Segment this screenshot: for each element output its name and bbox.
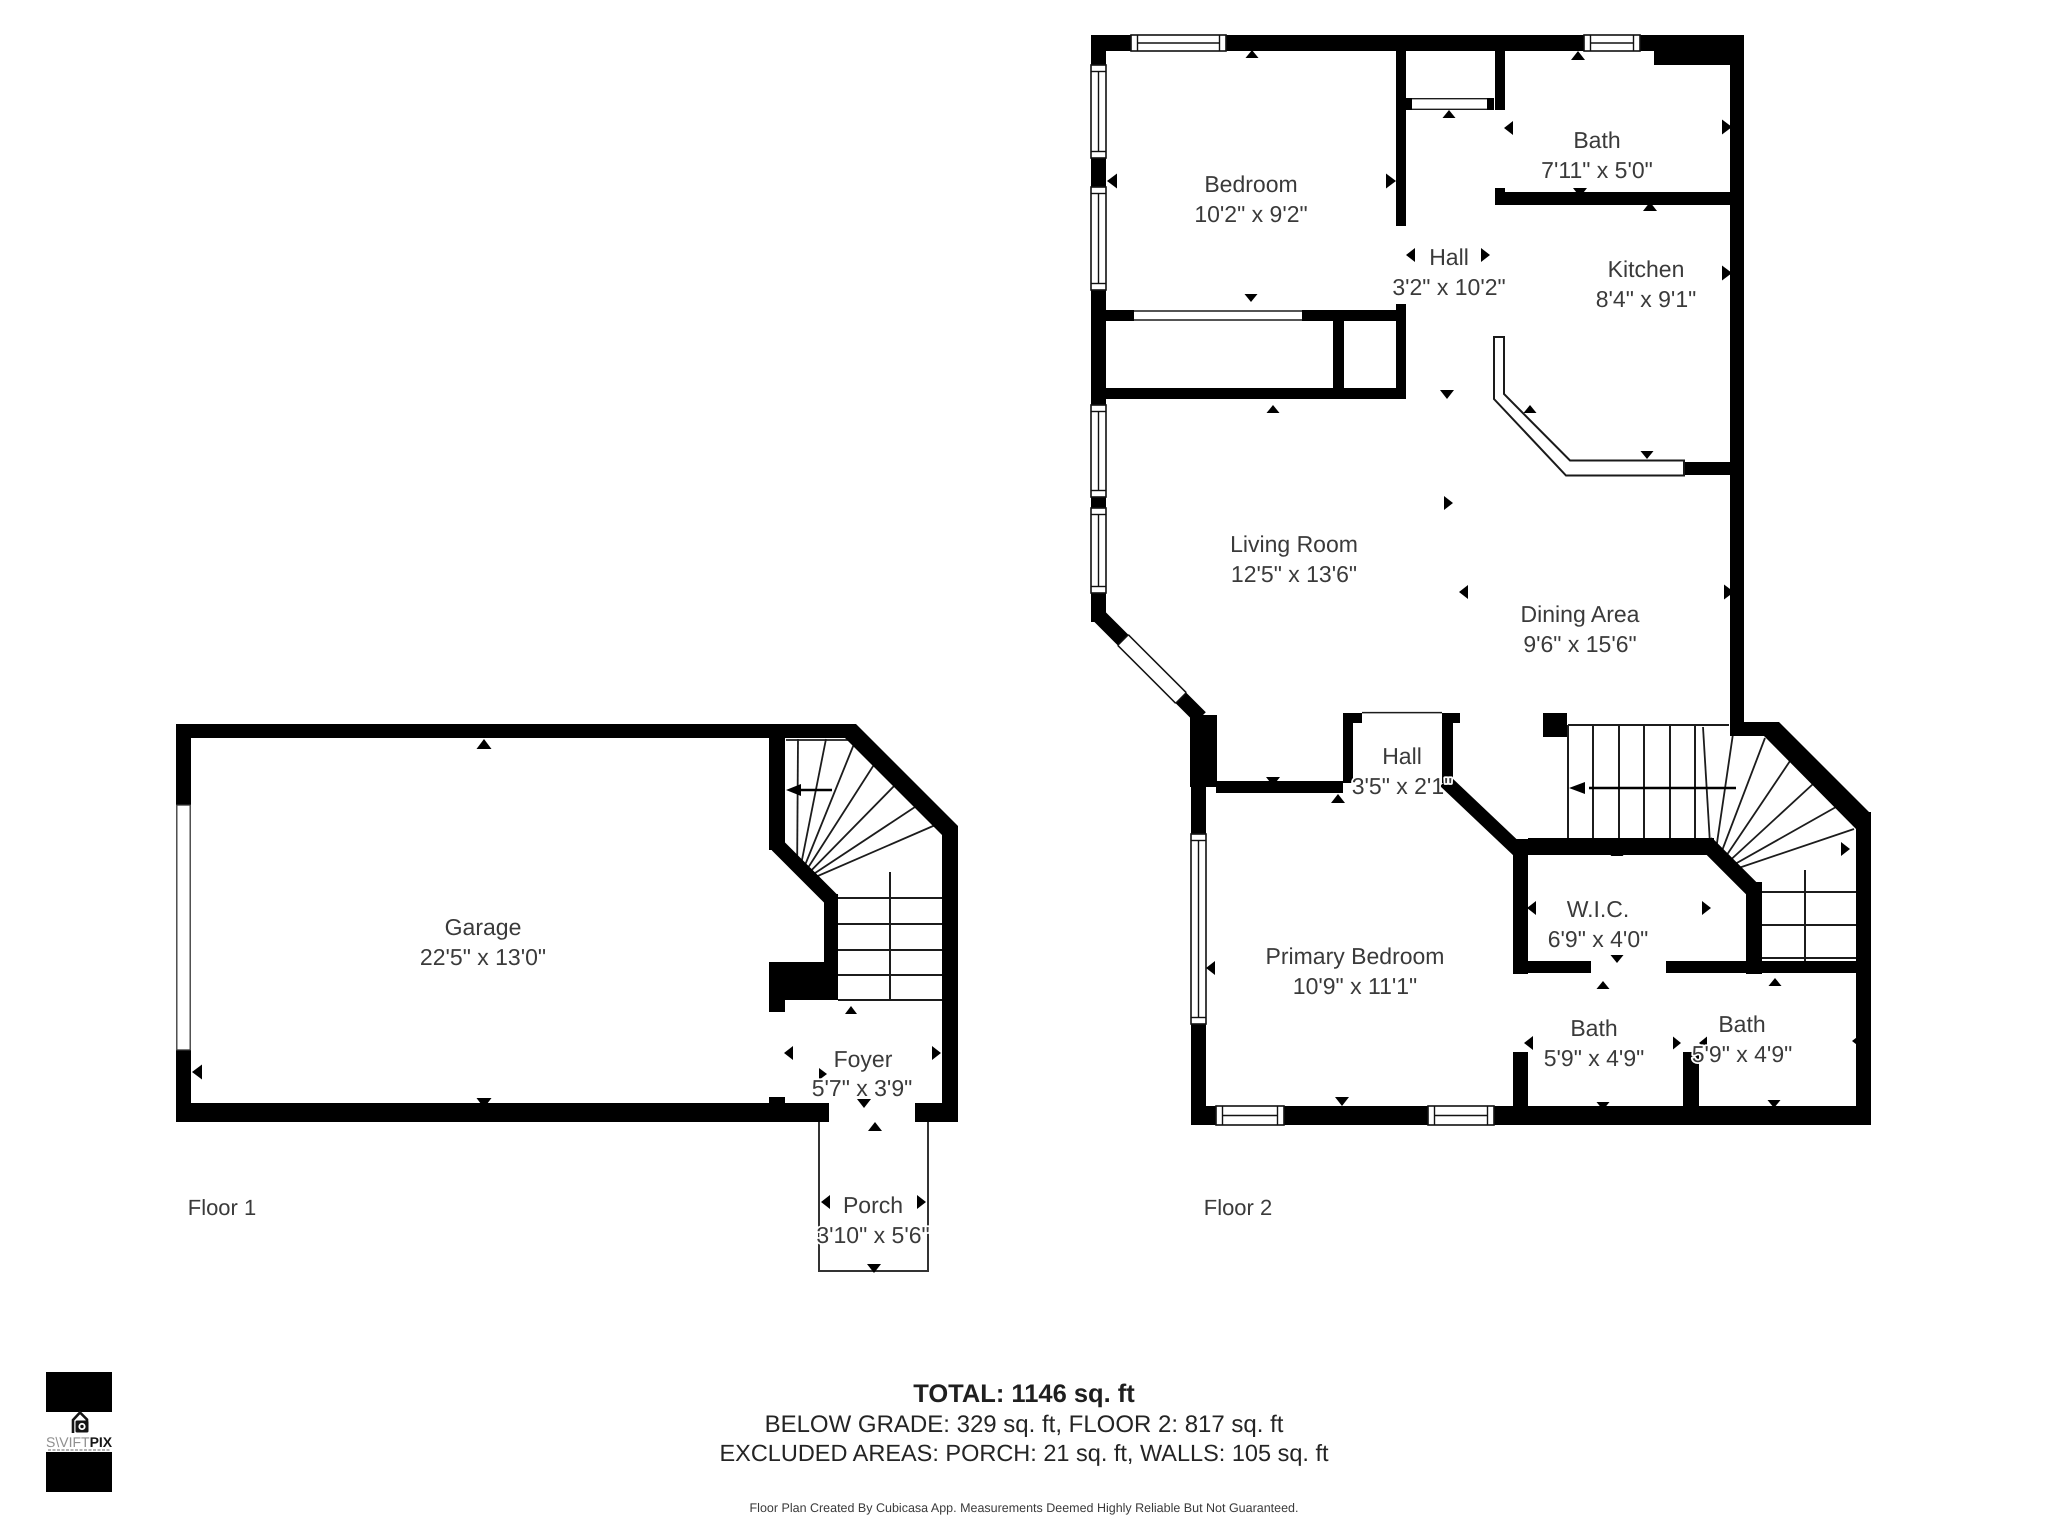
svg-text:3'2" x 10'2": 3'2" x 10'2" — [1392, 274, 1505, 300]
svg-text:3'5" x 2'1": 3'5" x 2'1" — [1352, 773, 1453, 799]
svg-text:Hall: Hall — [1429, 244, 1469, 270]
svg-text:6'9" x 4'0": 6'9" x 4'0" — [1548, 926, 1649, 952]
svg-text:Dining Area: Dining Area — [1521, 601, 1640, 627]
svg-text:5'9" x 4'9": 5'9" x 4'9" — [1692, 1041, 1793, 1067]
svg-text:W.I.C.: W.I.C. — [1567, 896, 1630, 922]
svg-text:Porch: Porch — [843, 1192, 903, 1218]
svg-text:Garage: Garage — [445, 914, 522, 940]
svg-text:Bath: Bath — [1570, 1015, 1617, 1041]
svg-text:8'4" x 9'1": 8'4" x 9'1" — [1596, 286, 1697, 312]
svg-text:Hall: Hall — [1382, 743, 1422, 769]
svg-text:22'5" x 13'0": 22'5" x 13'0" — [420, 944, 546, 970]
svg-text:9'6" x 15'6": 9'6" x 15'6" — [1523, 631, 1636, 657]
svg-text:10'9" x 11'1": 10'9" x 11'1" — [1293, 973, 1417, 999]
svg-text:Bedroom: Bedroom — [1204, 171, 1297, 197]
svg-text:Bath: Bath — [1573, 127, 1620, 153]
svg-text:10'2" x 9'2": 10'2" x 9'2" — [1194, 201, 1307, 227]
svg-text:5'9" x 4'9": 5'9" x 4'9" — [1544, 1045, 1645, 1071]
svg-text:Floor 1: Floor 1 — [188, 1195, 256, 1220]
svg-text:S\VIFTPIX: S\VIFTPIX — [46, 1434, 113, 1450]
svg-text:7'11" x 5'0": 7'11" x 5'0" — [1541, 157, 1653, 183]
svg-text:Bath: Bath — [1718, 1011, 1765, 1037]
svg-text:BELOW GRADE: 329 sq. ft, FLOOR: BELOW GRADE: 329 sq. ft, FLOOR 2: 817 sq… — [765, 1411, 1284, 1438]
svg-text:12'5" x 13'6": 12'5" x 13'6" — [1231, 561, 1357, 587]
svg-text:5'7" x 3'9": 5'7" x 3'9" — [812, 1075, 913, 1101]
svg-text:Floor Plan Created By Cubicasa: Floor Plan Created By Cubicasa App. Meas… — [750, 1501, 1299, 1515]
svg-text:TOTAL: 1146 sq. ft: TOTAL: 1146 sq. ft — [913, 1380, 1135, 1408]
svg-text:3'10" x 5'6": 3'10" x 5'6" — [816, 1222, 929, 1248]
svg-text:Living Room: Living Room — [1230, 531, 1358, 557]
svg-text:Primary Bedroom: Primary Bedroom — [1266, 943, 1445, 969]
svg-text:Floor 2: Floor 2 — [1204, 1195, 1272, 1220]
svg-text:EXCLUDED AREAS: PORCH: 21 sq.: EXCLUDED AREAS: PORCH: 21 sq. ft, WALLS:… — [719, 1440, 1329, 1466]
svg-text:Kitchen: Kitchen — [1608, 256, 1685, 282]
svg-text:Foyer: Foyer — [834, 1046, 893, 1072]
